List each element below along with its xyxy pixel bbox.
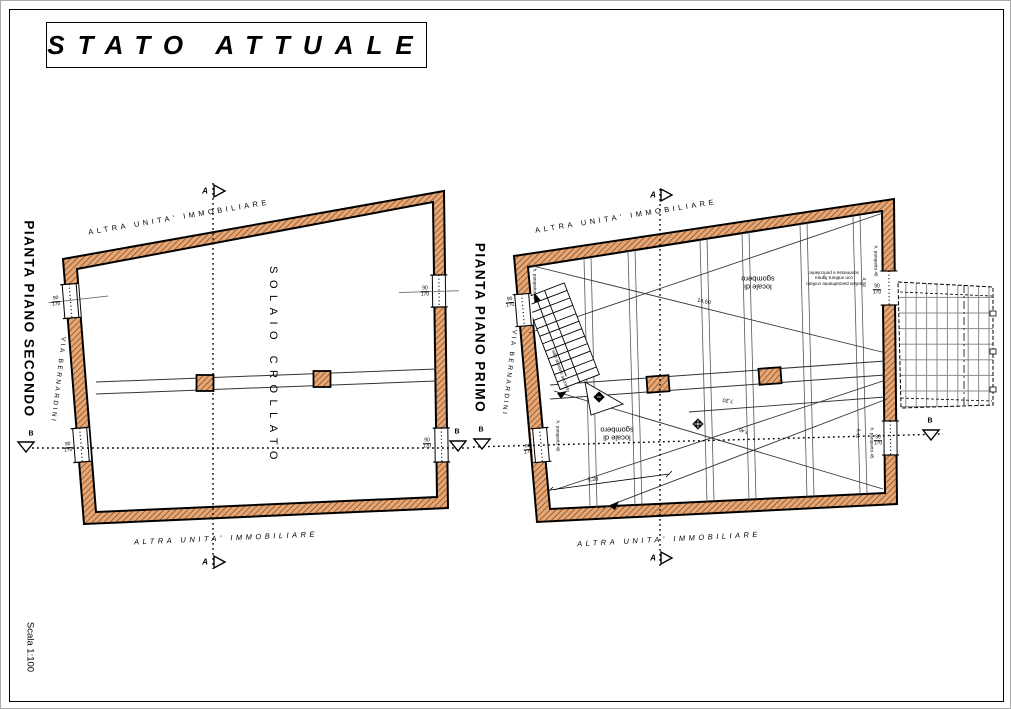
right-plan-window-3 bbox=[882, 421, 899, 455]
terrace-grid bbox=[898, 282, 996, 408]
right-plan-pillar-1 bbox=[646, 375, 669, 392]
right-plan-terrace-door bbox=[880, 271, 897, 305]
section-b-arrow-right-right-plan bbox=[923, 430, 939, 440]
left-plan-room-label: SOLAIO CROLLATO bbox=[267, 266, 279, 466]
section-b-letter-right-left-plan: B bbox=[454, 429, 459, 436]
right-plan-condition-note: solaio parzialmente crollato con orditur… bbox=[805, 270, 863, 287]
left-plan-name: PIANTA PIANO SECONDO bbox=[22, 220, 37, 417]
drawing-title: STATO ATTUALE bbox=[47, 30, 425, 61]
window-tag: 90170 bbox=[423, 438, 431, 450]
dim-7-20: 7,20 bbox=[722, 396, 733, 403]
floor-plan-drawing bbox=[1, 1, 1011, 709]
scale-label: Scala 1:100 bbox=[25, 622, 36, 672]
section-a-arrow-bottom-left-plan bbox=[214, 556, 225, 568]
section-b-arrow-left-left-plan bbox=[18, 442, 34, 452]
right-plan-room-upper-label: locale di sgombero bbox=[737, 274, 779, 291]
parapet-label-1: h. parapetto 45 bbox=[533, 269, 538, 300]
left-plan-pillar-1 bbox=[197, 375, 214, 391]
left-plan-window-2 bbox=[71, 427, 92, 462]
window-tag: 90170 bbox=[523, 444, 532, 456]
section-a-letter-top-left-plan: A bbox=[202, 187, 208, 196]
section-b-letter-left-left-plan: B bbox=[28, 431, 33, 438]
right-plan-joists bbox=[584, 215, 867, 507]
drawing-sheet: STATO ATTUALE PIANTA PIANO SECONDO ALTRA… bbox=[0, 0, 1011, 709]
level-marker bbox=[692, 418, 703, 429]
left-plan bbox=[18, 183, 469, 569]
window-tag: 90170 bbox=[874, 435, 882, 447]
section-b-letter-left-right-plan: B bbox=[478, 427, 483, 434]
title-box: STATO ATTUALE bbox=[46, 22, 427, 68]
section-a-letter-bottom-right-plan: A bbox=[650, 554, 656, 563]
window-tag: 90170 bbox=[421, 286, 429, 298]
dim-5-28: 5,28 bbox=[587, 476, 598, 483]
parapet-label-3: h. parapetto 45 bbox=[874, 246, 879, 277]
section-a-arrow-bottom-right-plan bbox=[661, 552, 672, 564]
left-plan-beam bbox=[96, 369, 436, 394]
window-tag: 90170 bbox=[63, 442, 72, 454]
section-a-letter-top-right-plan: A bbox=[650, 191, 656, 200]
left-plan-walls bbox=[63, 191, 448, 524]
section-b-arrow-left-right-plan bbox=[474, 439, 490, 449]
left-plan-pillar-2 bbox=[314, 371, 331, 387]
dim-4-38: 4,38 bbox=[860, 277, 866, 287]
left-plan-window-4 bbox=[433, 428, 450, 462]
right-plan-pillar-2 bbox=[758, 367, 781, 384]
section-a-arrow-top-left-plan bbox=[214, 185, 225, 197]
window-tag: 90170 bbox=[51, 296, 60, 308]
dimension-line bbox=[547, 471, 672, 493]
right-plan-name: PIANTA PIANO PRIMO bbox=[473, 243, 488, 413]
section-a-arrow-top-right-plan bbox=[661, 189, 672, 201]
window-tag: 90170 bbox=[505, 297, 514, 309]
right-plan-room-lower-label: locale di sgombero bbox=[596, 425, 638, 442]
section-b-letter-right-right-plan: B bbox=[927, 418, 932, 425]
right-plan bbox=[473, 189, 996, 566]
window-tag: 90170 bbox=[873, 284, 881, 296]
section-a-letter-bottom-left-plan: A bbox=[202, 558, 208, 567]
parapet-label-2: h. parapetto 45 bbox=[556, 421, 561, 452]
section-b-arrow-right-left-plan bbox=[450, 441, 466, 451]
right-plan-window-1 bbox=[513, 293, 534, 326]
